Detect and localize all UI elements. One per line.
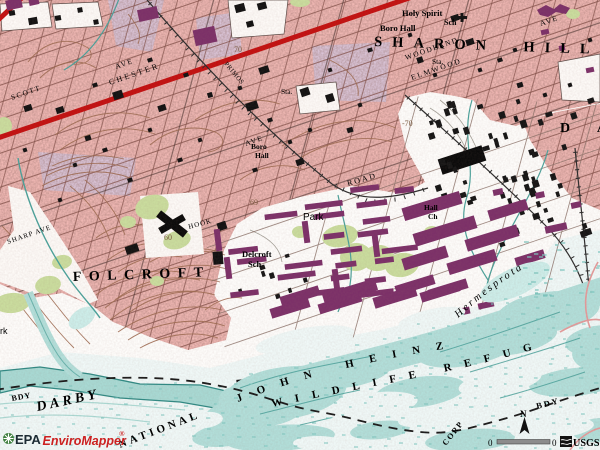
svg-text:Park: Park (303, 212, 325, 223)
svg-text:N: N (520, 409, 527, 419)
svg-text:Sch: Sch (248, 259, 262, 269)
svg-text:60: 60 (164, 233, 172, 242)
svg-text:Boro: Boro (251, 142, 267, 151)
svg-text:rk: rk (0, 326, 8, 336)
svg-text:EPA: EPA (15, 432, 41, 447)
svg-text:Sta.: Sta. (281, 87, 293, 96)
svg-text:Hall: Hall (424, 203, 438, 212)
svg-text:0: 0 (488, 438, 493, 448)
svg-text:Hall: Hall (255, 151, 269, 160)
svg-text:Boro Hall: Boro Hall (380, 23, 416, 33)
svg-text:EnviroMapper: EnviroMapper (43, 434, 127, 448)
svg-text:-70: -70 (402, 119, 413, 128)
svg-text:®: ® (119, 429, 125, 438)
svg-text:Holy Spirit: Holy Spirit (402, 8, 443, 18)
svg-text:70: 70 (234, 45, 242, 54)
svg-text:Ch: Ch (428, 212, 438, 221)
svg-text:Sch: Sch (444, 18, 457, 27)
svg-text:0: 0 (552, 438, 557, 448)
svg-text:69: 69 (250, 198, 258, 207)
svg-text:Sta.: Sta. (432, 57, 444, 66)
svg-text:USGS: USGS (573, 438, 600, 449)
svg-text:Delcroft: Delcroft (242, 249, 272, 259)
svg-text:D A: D A (560, 121, 600, 136)
